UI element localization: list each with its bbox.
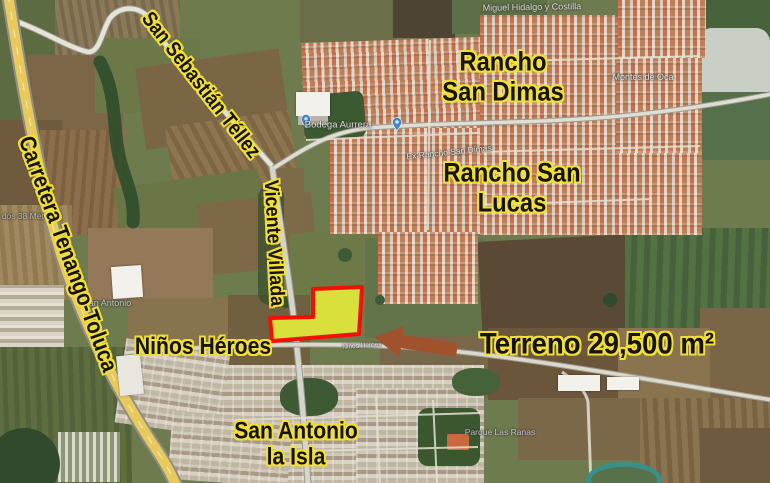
label-terreno-area: Terreno 29,500 m²: [480, 328, 714, 361]
label-rancho-san-lucas-line1: Rancho San: [443, 158, 580, 188]
label-rancho-san-dimas-line1: Rancho: [442, 47, 563, 77]
satellite-map: Miguel Hidalgo y Costilla Montes de Oca …: [0, 0, 770, 483]
label-san-antonio-la-isla: San Antonio la Isla: [234, 419, 358, 472]
poi-map-pin: [392, 117, 402, 131]
street-label-montes-de-oca: Montes de Oca: [612, 72, 673, 82]
label-san-antonio-line1: San Antonio: [234, 419, 358, 445]
pointer-arrow: [374, 326, 458, 357]
poi-label-parque-las-ranas: Parque Las Ranas: [465, 427, 535, 437]
label-san-antonio-line2: la Isla: [234, 445, 358, 471]
label-rancho-san-dimas-line2: San Dimas: [442, 77, 563, 107]
label-rancho-san-dimas: Rancho San Dimas: [442, 47, 563, 106]
label-ninos-heroes: Niños Héroes: [135, 334, 271, 360]
label-rancho-san-lucas: Rancho San Lucas: [443, 158, 580, 217]
label-rancho-san-lucas-line2: Lucas: [443, 188, 580, 218]
street-label-miguel-hidalgo: Miguel Hidalgo y Costilla: [483, 1, 582, 13]
poi-label-bodega-aurrera: Bodega Aurrera: [305, 120, 372, 131]
